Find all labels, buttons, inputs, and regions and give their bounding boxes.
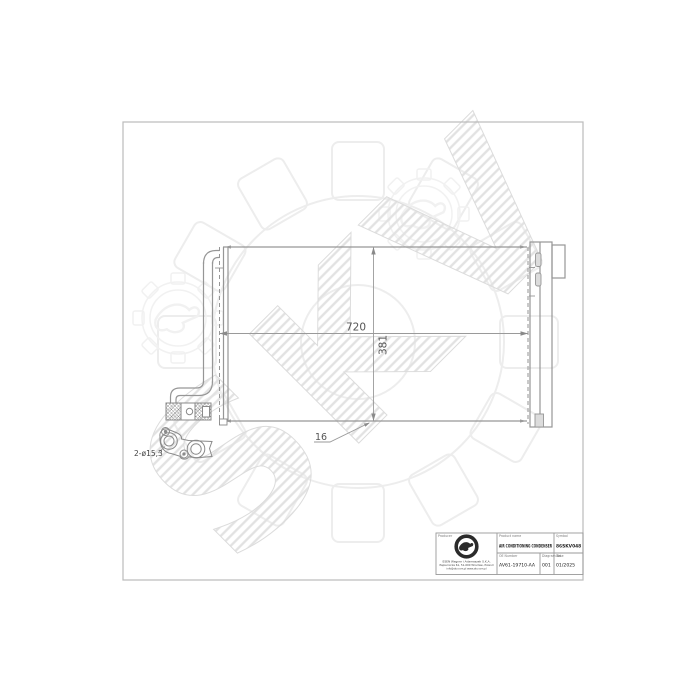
oe-number-label: OE Number bbox=[499, 554, 518, 558]
oe-number-value: AV61-19710-AA bbox=[499, 563, 536, 569]
company-logo-stamp bbox=[456, 536, 477, 557]
drawing-sheet: SKV bbox=[0, 0, 700, 700]
symbol-label: Symbol bbox=[556, 534, 568, 538]
product-name-value: AIR CONDITIONING CONDENSER bbox=[499, 544, 552, 549]
port-diameter-label: 2-ø15,3 bbox=[134, 447, 165, 459]
watermark-text: SKV bbox=[92, 74, 624, 606]
date-value: 01/2025 bbox=[556, 563, 575, 569]
svg-text:16: 16 bbox=[315, 432, 327, 443]
title-block: Producer ESEN Wagner i Adamaszek S.K.A. … bbox=[436, 533, 583, 575]
date-label: Date bbox=[556, 554, 564, 558]
company-address-line2: Papiernicza 61, 51-000 Wrocław, Poland bbox=[440, 563, 494, 567]
producer-label: Producer bbox=[438, 534, 453, 538]
diagram-no-value: 001 bbox=[542, 563, 551, 569]
company-address-line1: ESEN Wagner i Adamaszek S.K.A. bbox=[443, 560, 491, 564]
product-name-label: Product name bbox=[499, 534, 521, 538]
svg-text:381: 381 bbox=[378, 335, 390, 355]
company-address-line3: info@skv.com.pl www.skv.com.pl bbox=[447, 567, 487, 571]
symbol-value: 86SKV048 bbox=[556, 544, 581, 550]
svg-text:720: 720 bbox=[346, 322, 366, 334]
svg-text:2-ø15,3: 2-ø15,3 bbox=[134, 449, 163, 458]
technical-drawing-canvas: SKV bbox=[0, 0, 700, 700]
